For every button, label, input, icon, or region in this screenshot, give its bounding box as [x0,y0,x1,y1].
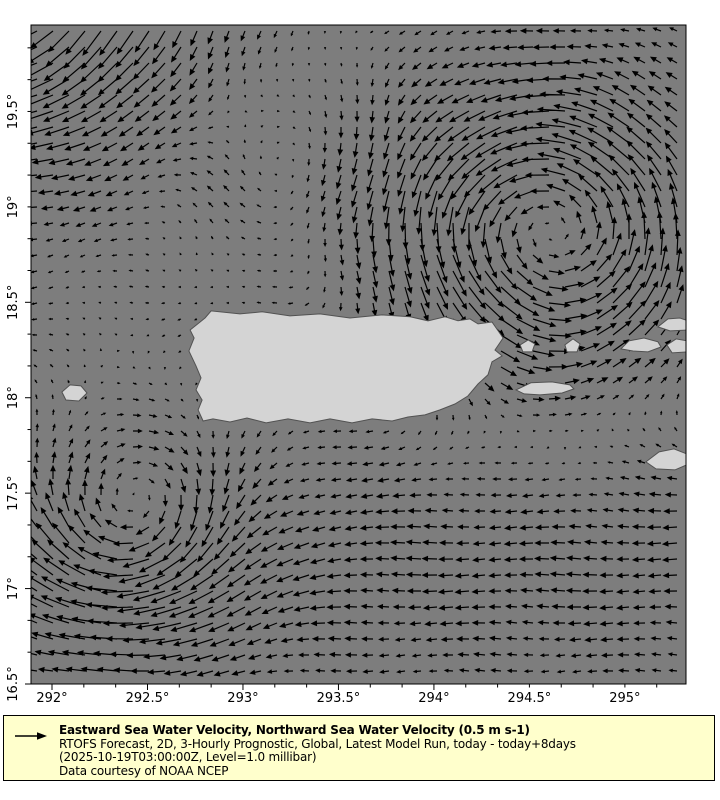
legend-title: Eastward Sea Water Velocity, Northward S… [59,724,576,738]
x-tick-label: 292.5° [126,691,170,706]
y-tick-label: 18.5° [6,285,21,320]
legend: Eastward Sea Water Velocity, Northward S… [3,715,715,781]
x-tick-label: 295° [609,691,640,706]
x-tick-label: 293.5° [317,691,361,706]
y-tick-label: 18° [6,386,21,409]
y-tick-label: 16.5° [6,666,21,701]
x-tick-label: 292° [36,691,67,706]
y-tick-label: 17.5° [6,475,21,510]
x-tick-label: 294° [418,691,449,706]
reference-arrow-icon [14,730,48,742]
legend-datetime: (2025-10-19T03:00:00Z, Level=1.0 milliba… [59,751,576,765]
x-tick-label: 294.5° [508,691,552,706]
y-tick-label: 19° [6,195,21,218]
figure: 292°292.5°293°293.5°294°294.5°295°16.5°1… [0,0,720,800]
legend-subtitle: RTOFS Forecast, 2D, 3-Hourly Prognostic,… [59,738,576,752]
y-tick-label: 17° [6,577,21,600]
legend-credit: Data courtesy of NOAA NCEP [59,765,576,779]
x-tick-label: 293° [227,691,258,706]
ocean-current-map: 292°292.5°293°293.5°294°294.5°295°16.5°1… [0,0,720,714]
y-tick-label: 19.5° [6,94,21,129]
